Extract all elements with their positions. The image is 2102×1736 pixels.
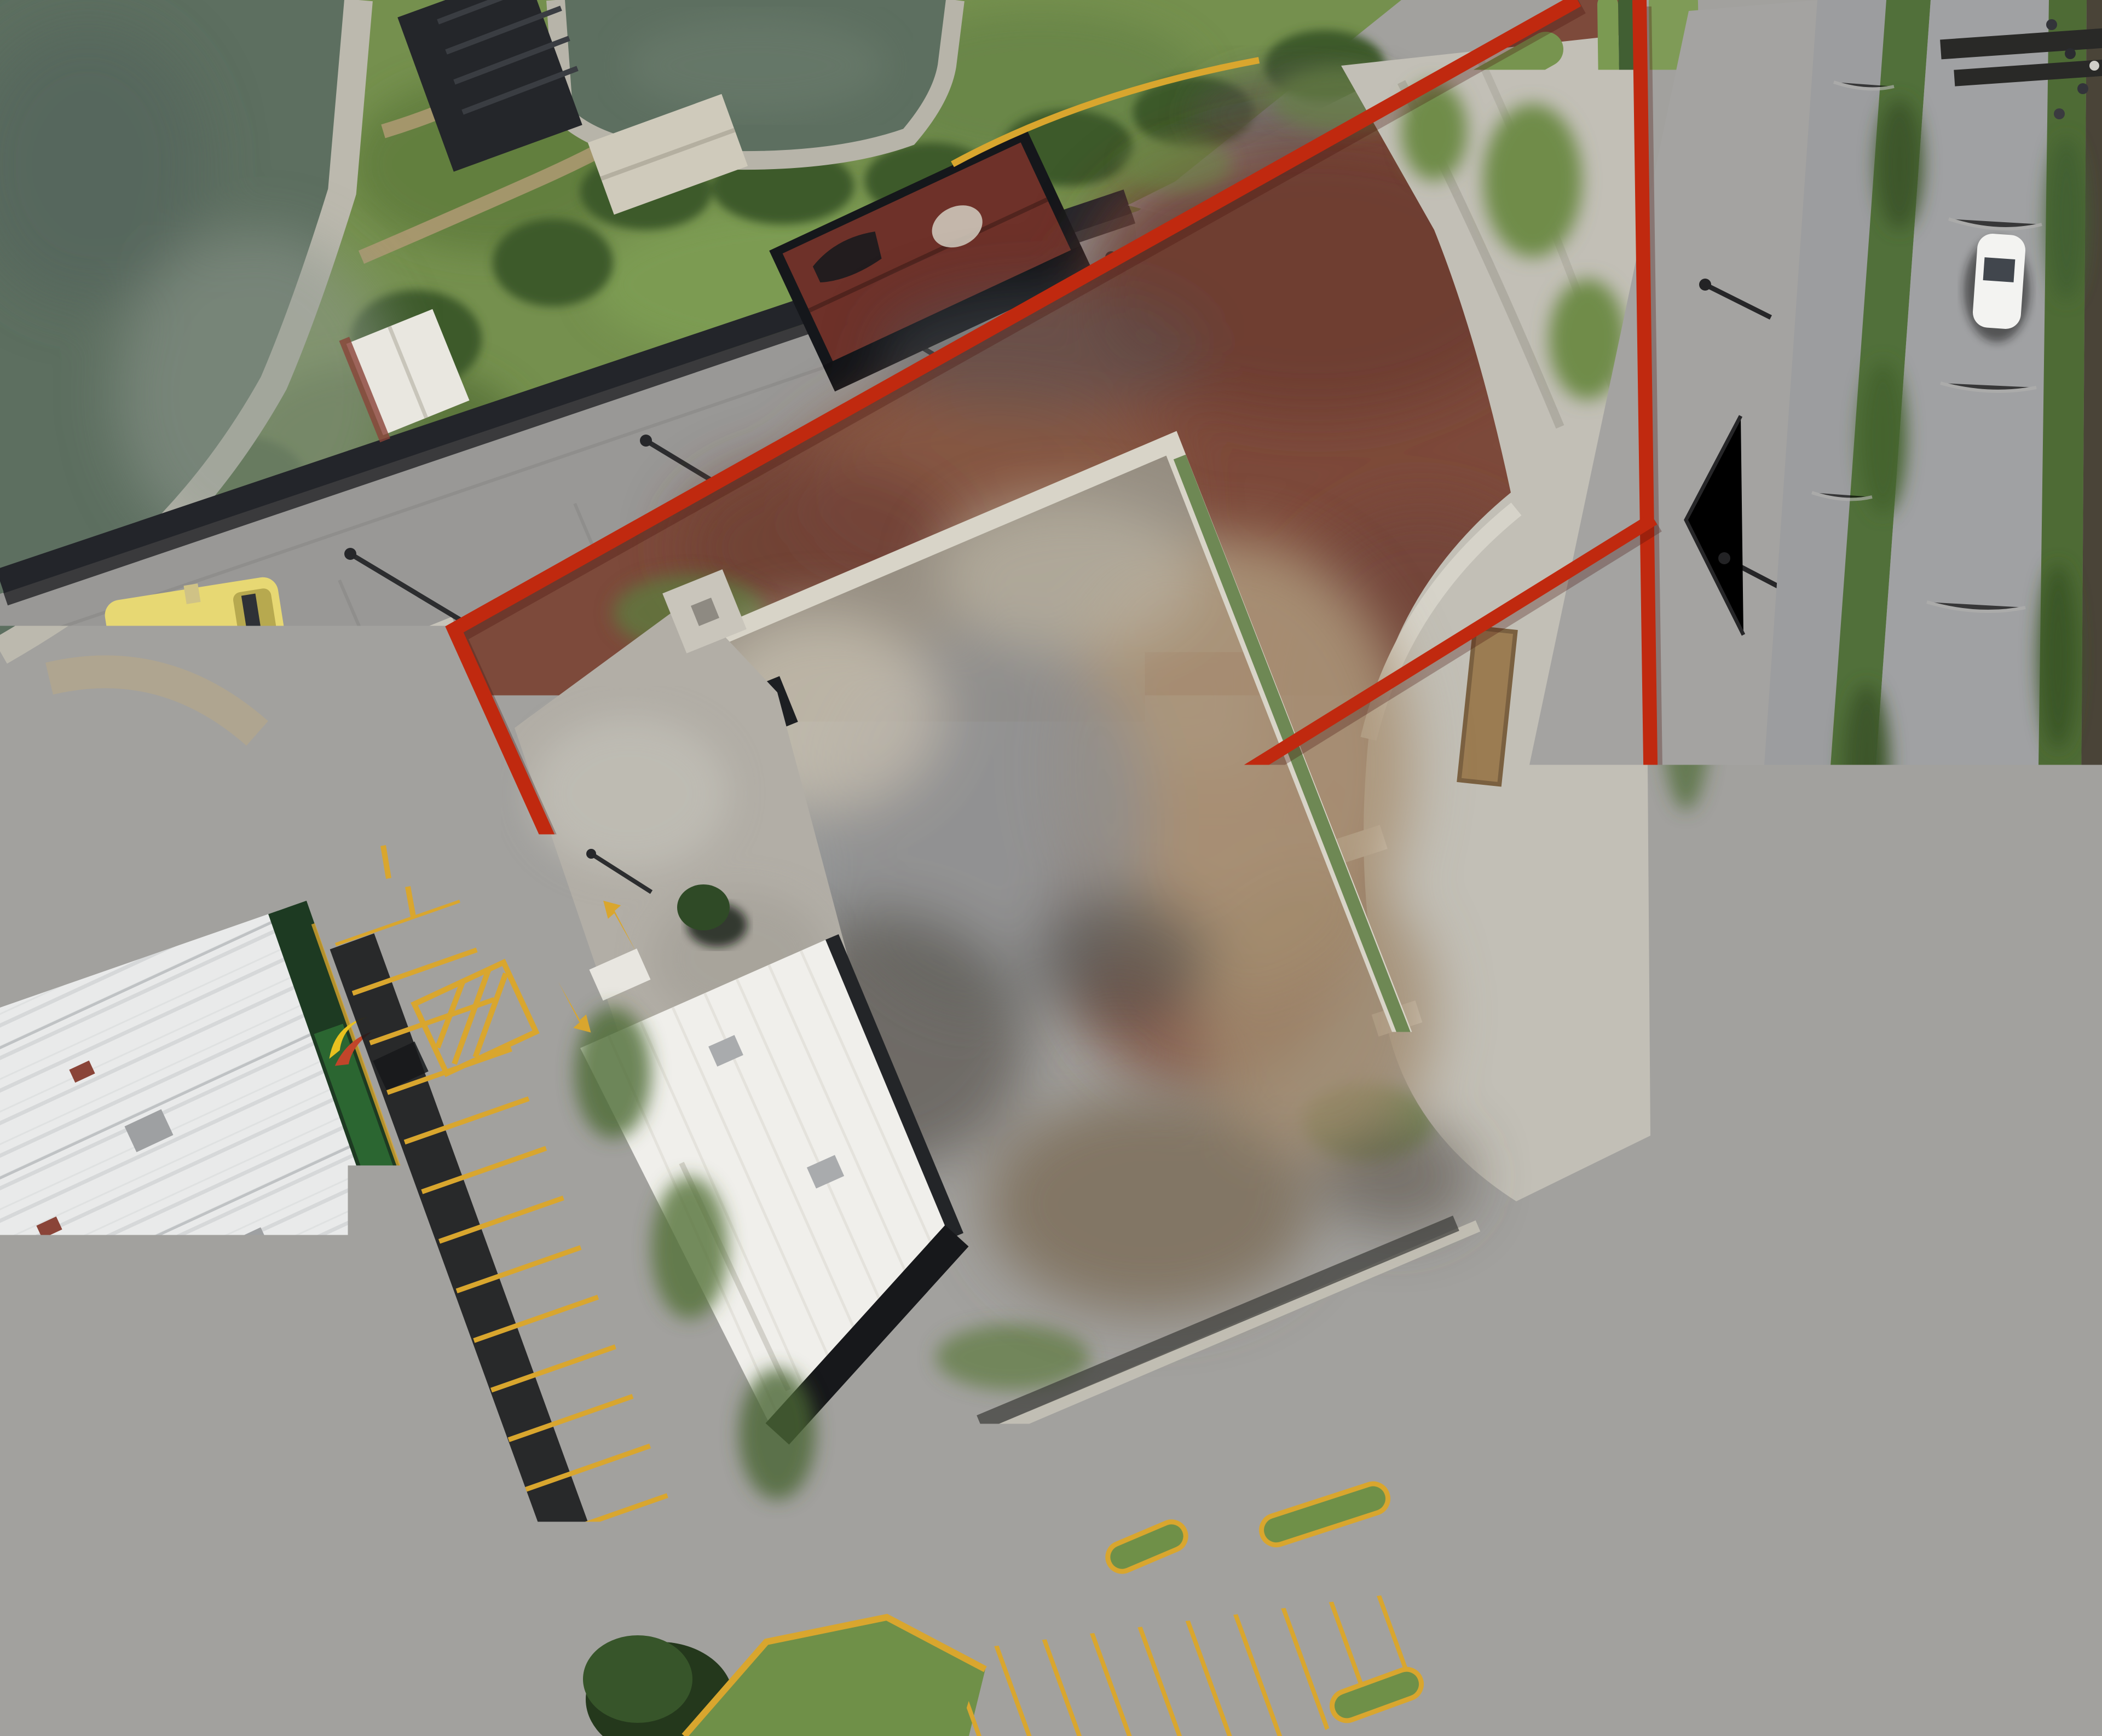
aerial-photo: Bodega Aurrera Pickup — [0, 0, 2102, 1736]
avenue-car-white-bottom — [1802, 1642, 1856, 1734]
avenue-truck — [1876, 1018, 1932, 1136]
